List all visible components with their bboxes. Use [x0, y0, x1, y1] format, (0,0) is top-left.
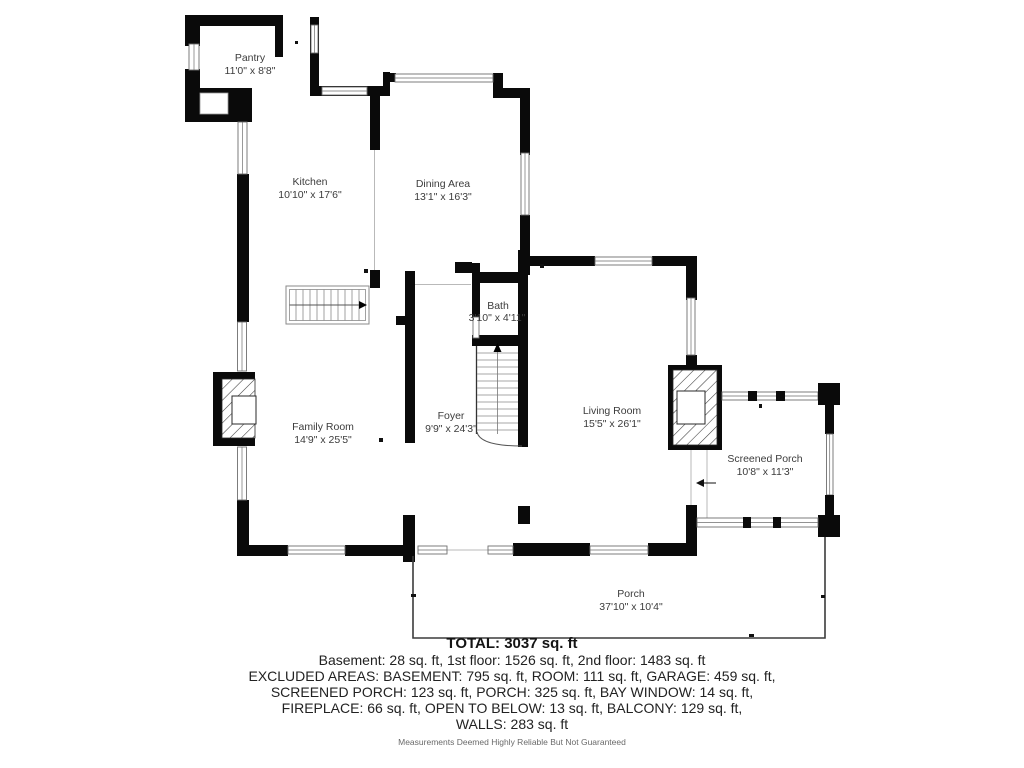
hall-window: [311, 25, 318, 53]
screen-wall-bottom: [697, 517, 818, 528]
screen-wall-top: [722, 391, 818, 401]
door-swing-arc: [477, 432, 522, 446]
pantry-window: [189, 44, 199, 70]
excluded-areas-text: EXCLUDED AREAS: BASEMENT: 795 sq. ft, RO…: [0, 668, 1024, 684]
family-room-fireplace: [213, 372, 256, 446]
pantry-cabinet-notch: [200, 93, 228, 114]
foyer-bottom-window-right: [488, 546, 513, 554]
living-bottom-window: [590, 546, 648, 554]
floor-areas-text: Basement: 28 sq. ft, 1st floor: 1526 sq.…: [0, 652, 1024, 668]
walls: [185, 15, 697, 562]
room-dims-dining-area: 13'1" x 16'3": [414, 191, 472, 203]
room-label-living-room: Living Room: [583, 405, 642, 417]
walls-area-text: WALLS: 283 sq. ft: [0, 716, 1024, 732]
room-dims-living-room: 15'5" x 26'1": [583, 418, 641, 430]
dining-right-window: [521, 153, 529, 215]
room-label-screened-porch: Screened Porch: [727, 453, 802, 465]
disclaimer-text: Measurements Deemed Highly Reliable But …: [0, 737, 1024, 747]
main-stairs: [477, 343, 523, 446]
excluded-areas-text2: SCREENED PORCH: 123 sq. ft, PORCH: 325 s…: [0, 684, 1024, 700]
room-dims-screened-porch: 10'8" x 11'3": [737, 466, 794, 478]
porch-post-bottom-right: [818, 515, 840, 537]
basement-stairs: [286, 286, 369, 324]
porch-door-arrow: [696, 479, 716, 487]
room-dims-pantry: 11'0" x 8'8": [225, 65, 276, 77]
kitchen-left-window: [238, 122, 247, 174]
room-dims-family-room: 14'9" x 25'5": [294, 434, 352, 446]
kitchen-top-window: [322, 87, 367, 95]
family-left-window-upper: [238, 322, 247, 371]
room-label-kitchen: Kitchen: [292, 176, 327, 188]
family-bottom-window: [288, 546, 345, 554]
room-labels: Pantry 11'0" x 8'8" Kitchen 10'10" x 17'…: [225, 52, 803, 613]
room-label-pantry: Pantry: [235, 52, 266, 64]
living-right-window: [687, 298, 695, 355]
family-left-window-lower: [238, 447, 247, 500]
foyer-bottom-window-left: [418, 546, 447, 554]
excluded-areas-text3: FIREPLACE: 66 sq. ft, OPEN TO BELOW: 13 …: [0, 700, 1024, 716]
room-label-family-room: Family Room: [292, 421, 354, 433]
porch-post-top-right: [818, 383, 840, 405]
total-area-text: TOTAL: 3037 sq. ft: [0, 636, 1024, 652]
windows: [189, 25, 695, 554]
room-dims-kitchen: 10'10" x 17'6": [278, 189, 342, 201]
room-dims-foyer: 9'9" x 24'3": [425, 423, 477, 435]
room-label-porch: Porch: [617, 588, 645, 600]
room-label-bath: Bath: [487, 300, 509, 312]
open-boundary-lines: [375, 150, 708, 550]
room-label-dining-area: Dining Area: [416, 178, 470, 190]
area-summary: TOTAL: 3037 sq. ft Basement: 28 sq. ft, …: [0, 636, 1024, 747]
room-dims-bath: 3'10" x 4'11": [469, 312, 526, 324]
floorplan-page: Pantry 11'0" x 8'8" Kitchen 10'10" x 17'…: [0, 0, 1024, 768]
room-dims-porch: 37'10" x 10'4": [599, 601, 663, 613]
living-room-fireplace: [668, 365, 722, 450]
living-top-window: [595, 257, 652, 265]
dining-top-window: [395, 74, 493, 82]
screen-wall-right: [827, 434, 834, 495]
room-label-foyer: Foyer: [438, 410, 465, 422]
